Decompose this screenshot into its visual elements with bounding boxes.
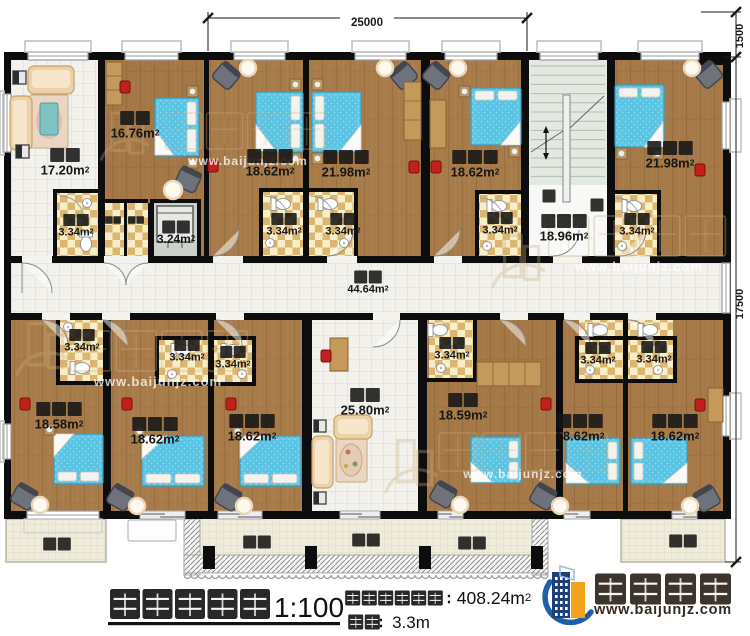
svg-text:www.baijunjz.com: www.baijunjz.com xyxy=(574,259,703,274)
svg-text:www.baijunjz.com: www.baijunjz.com xyxy=(93,374,222,389)
svg-text:3.24m2: 3.24m2 xyxy=(157,232,196,246)
svg-text:18.62m2: 18.62m2 xyxy=(246,163,295,178)
svg-text:21.98m2: 21.98m2 xyxy=(646,155,695,170)
svg-text:3.34m2: 3.34m2 xyxy=(580,354,615,366)
svg-text:18.62m2: 18.62m2 xyxy=(131,431,180,446)
svg-text:18.58m2: 18.58m2 xyxy=(35,416,84,431)
svg-text:1500: 1500 xyxy=(734,24,746,48)
svg-text:∶: ∶ xyxy=(379,615,383,632)
svg-text:18.96m2: 18.96m2 xyxy=(540,228,589,243)
svg-text:25000: 25000 xyxy=(351,17,383,29)
svg-text:∶: ∶ xyxy=(447,591,451,608)
svg-text:3.34m2: 3.34m2 xyxy=(64,341,99,353)
svg-text:25.80m2: 25.80m2 xyxy=(341,402,390,417)
svg-text:3.34m2: 3.34m2 xyxy=(619,225,654,237)
svg-text:www.baijunjz.com: www.baijunjz.com xyxy=(462,467,583,481)
svg-text:17.20m2: 17.20m2 xyxy=(41,162,90,177)
svg-text:18.62m2: 18.62m2 xyxy=(651,428,700,443)
svg-text:www.baijunjz.com: www.baijunjz.com xyxy=(593,602,732,618)
svg-text:3.3m: 3.3m xyxy=(392,613,430,632)
svg-text:3.34m2: 3.34m2 xyxy=(169,351,204,363)
svg-text:3.34m2: 3.34m2 xyxy=(215,358,250,370)
svg-text:3.34m2: 3.34m2 xyxy=(636,353,671,365)
svg-text:21.98m2: 21.98m2 xyxy=(322,164,371,179)
svg-text:3.34m2: 3.34m2 xyxy=(434,349,469,361)
svg-text:1:100: 1:100 xyxy=(274,592,344,623)
svg-text:3.34m2: 3.34m2 xyxy=(325,225,360,237)
svg-text:44.64m2: 44.64m2 xyxy=(347,283,388,295)
svg-text:16.76m2: 16.76m2 xyxy=(111,125,160,140)
svg-text:3.34m2: 3.34m2 xyxy=(58,226,93,238)
svg-text:18.62m2: 18.62m2 xyxy=(228,428,277,443)
svg-text:3.34m2: 3.34m2 xyxy=(482,224,517,236)
svg-text:18.62m2: 18.62m2 xyxy=(556,428,605,443)
svg-text:18.62m2: 18.62m2 xyxy=(451,164,500,179)
svg-text:17500: 17500 xyxy=(734,289,746,320)
svg-text:18.59m2: 18.59m2 xyxy=(439,407,488,422)
svg-text:408.24m2: 408.24m2 xyxy=(457,588,531,608)
svg-text:3.34m2: 3.34m2 xyxy=(266,225,301,237)
